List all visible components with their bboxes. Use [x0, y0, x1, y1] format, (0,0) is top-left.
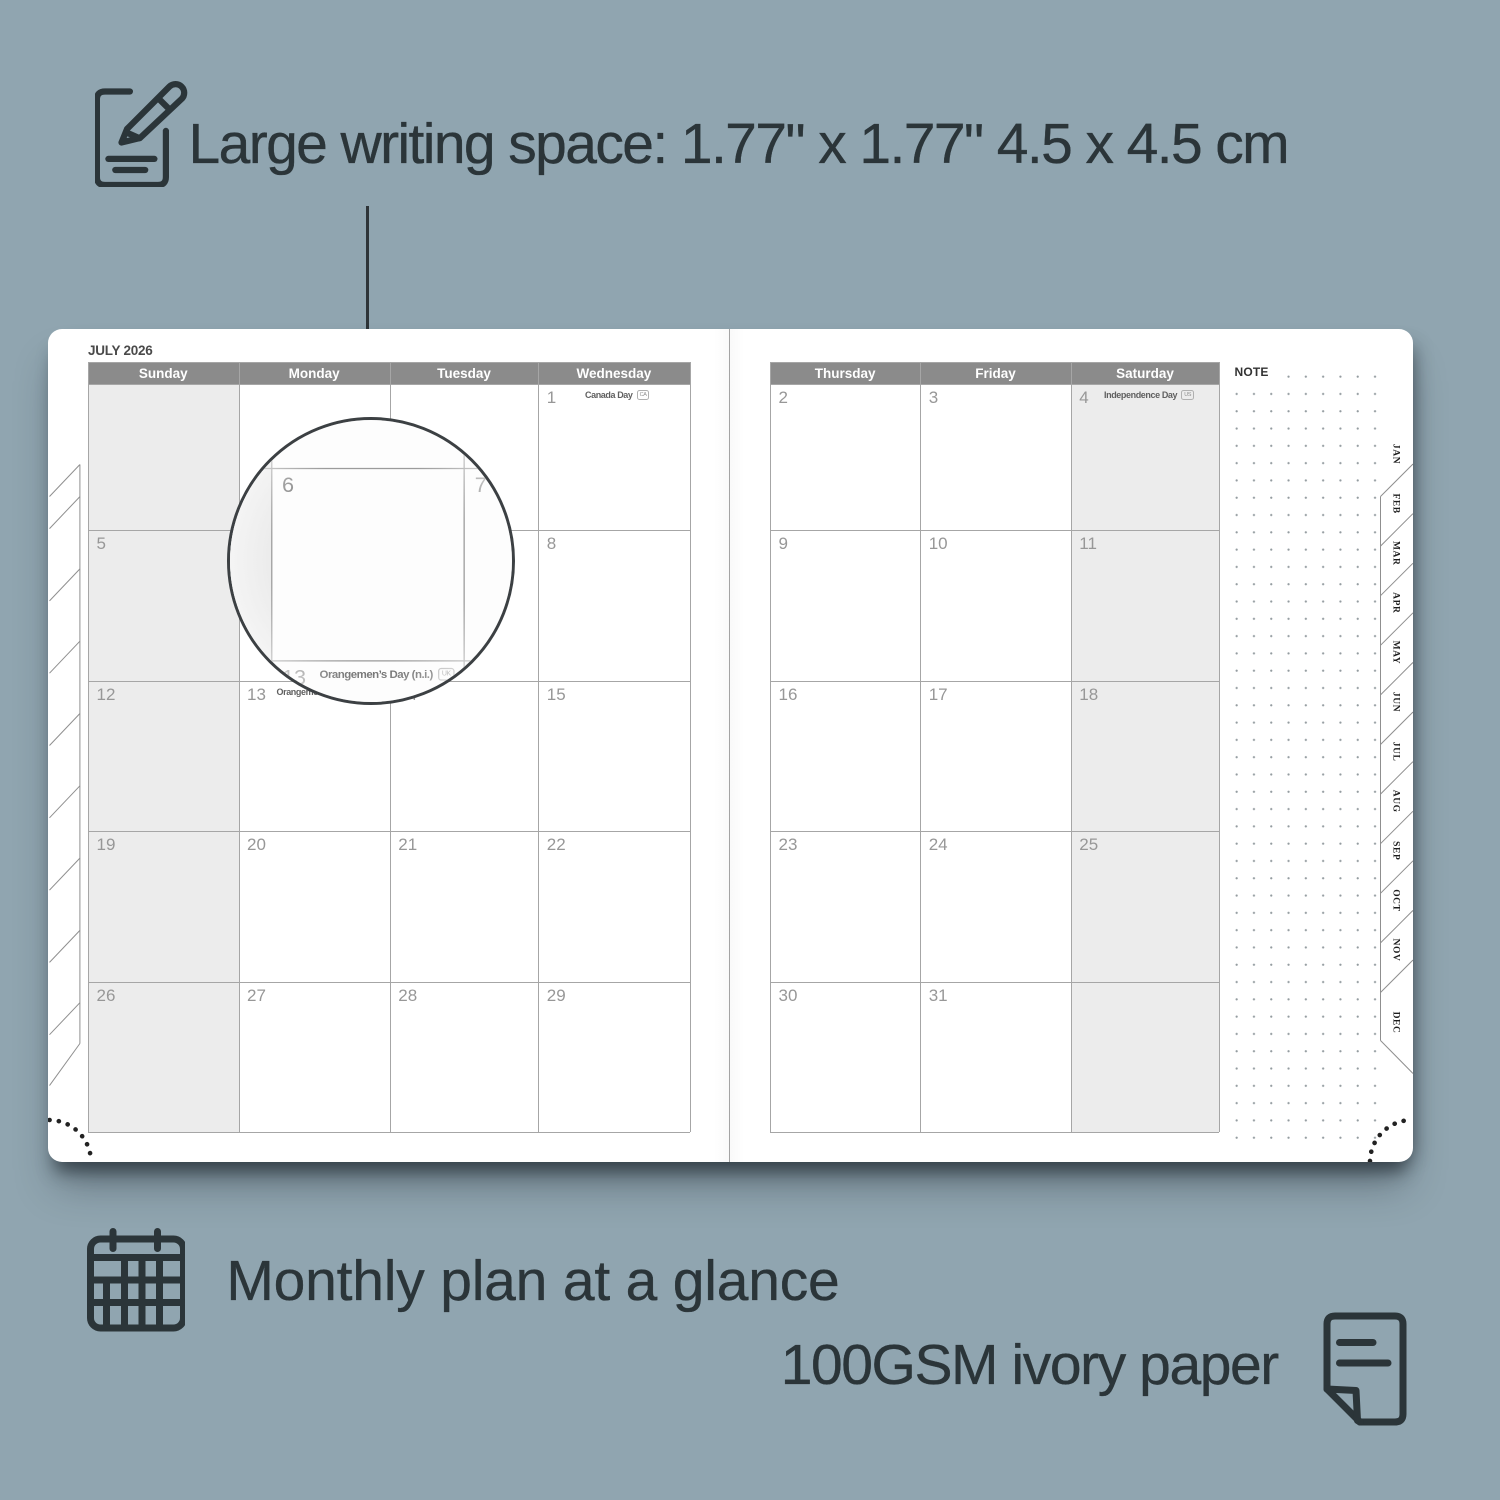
- svg-text:JAN: JAN: [1390, 444, 1400, 464]
- svg-text:OCT: OCT: [1390, 889, 1400, 911]
- svg-text:SEP: SEP: [1390, 841, 1400, 860]
- svg-text:FEB: FEB: [1390, 493, 1400, 513]
- svg-text:NOV: NOV: [1390, 939, 1400, 962]
- svg-text:APR: APR: [1390, 592, 1400, 613]
- svg-text:JUN: JUN: [1390, 692, 1400, 712]
- svg-text:MAY: MAY: [1390, 641, 1400, 665]
- svg-text:AUG: AUG: [1390, 790, 1400, 813]
- svg-text:MAR: MAR: [1390, 541, 1400, 566]
- svg-text:DEC: DEC: [1390, 1012, 1400, 1034]
- svg-text:JUL: JUL: [1390, 742, 1400, 762]
